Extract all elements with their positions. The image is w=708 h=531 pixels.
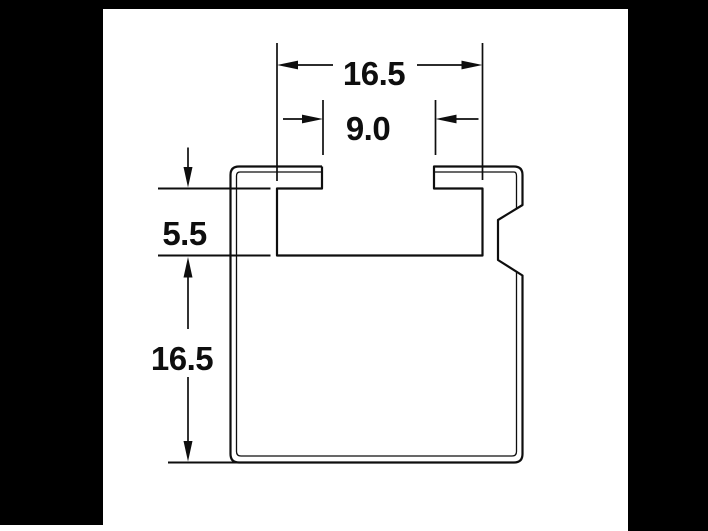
arrow-left-icon [436,115,457,124]
dimension-slot-depth: 5.5 [158,148,271,256]
slot-width-label: 16.5 [343,55,405,92]
body-height-label: 16.5 [151,340,213,377]
arrow-down-icon [184,167,193,188]
arrow-left-icon [277,61,298,70]
profile-outline [231,167,523,463]
profile-inner-edge-left [237,172,517,456]
throat-width-label: 9.0 [346,110,390,147]
viewer-background: 16.5 9.0 5.5 16.5 [0,0,708,531]
dimension-body-height: 16.5 [151,257,240,463]
arrow-right-icon [302,115,323,124]
profile-drawing: 16.5 9.0 5.5 16.5 [0,0,708,531]
dimension-throat-width: 9.0 [283,100,479,155]
arrow-down-icon [184,441,193,462]
arrow-up-icon [184,257,193,278]
slot-depth-label: 5.5 [162,215,207,252]
profile-inner-edge-right [434,172,517,209]
arrow-right-icon [462,61,483,70]
